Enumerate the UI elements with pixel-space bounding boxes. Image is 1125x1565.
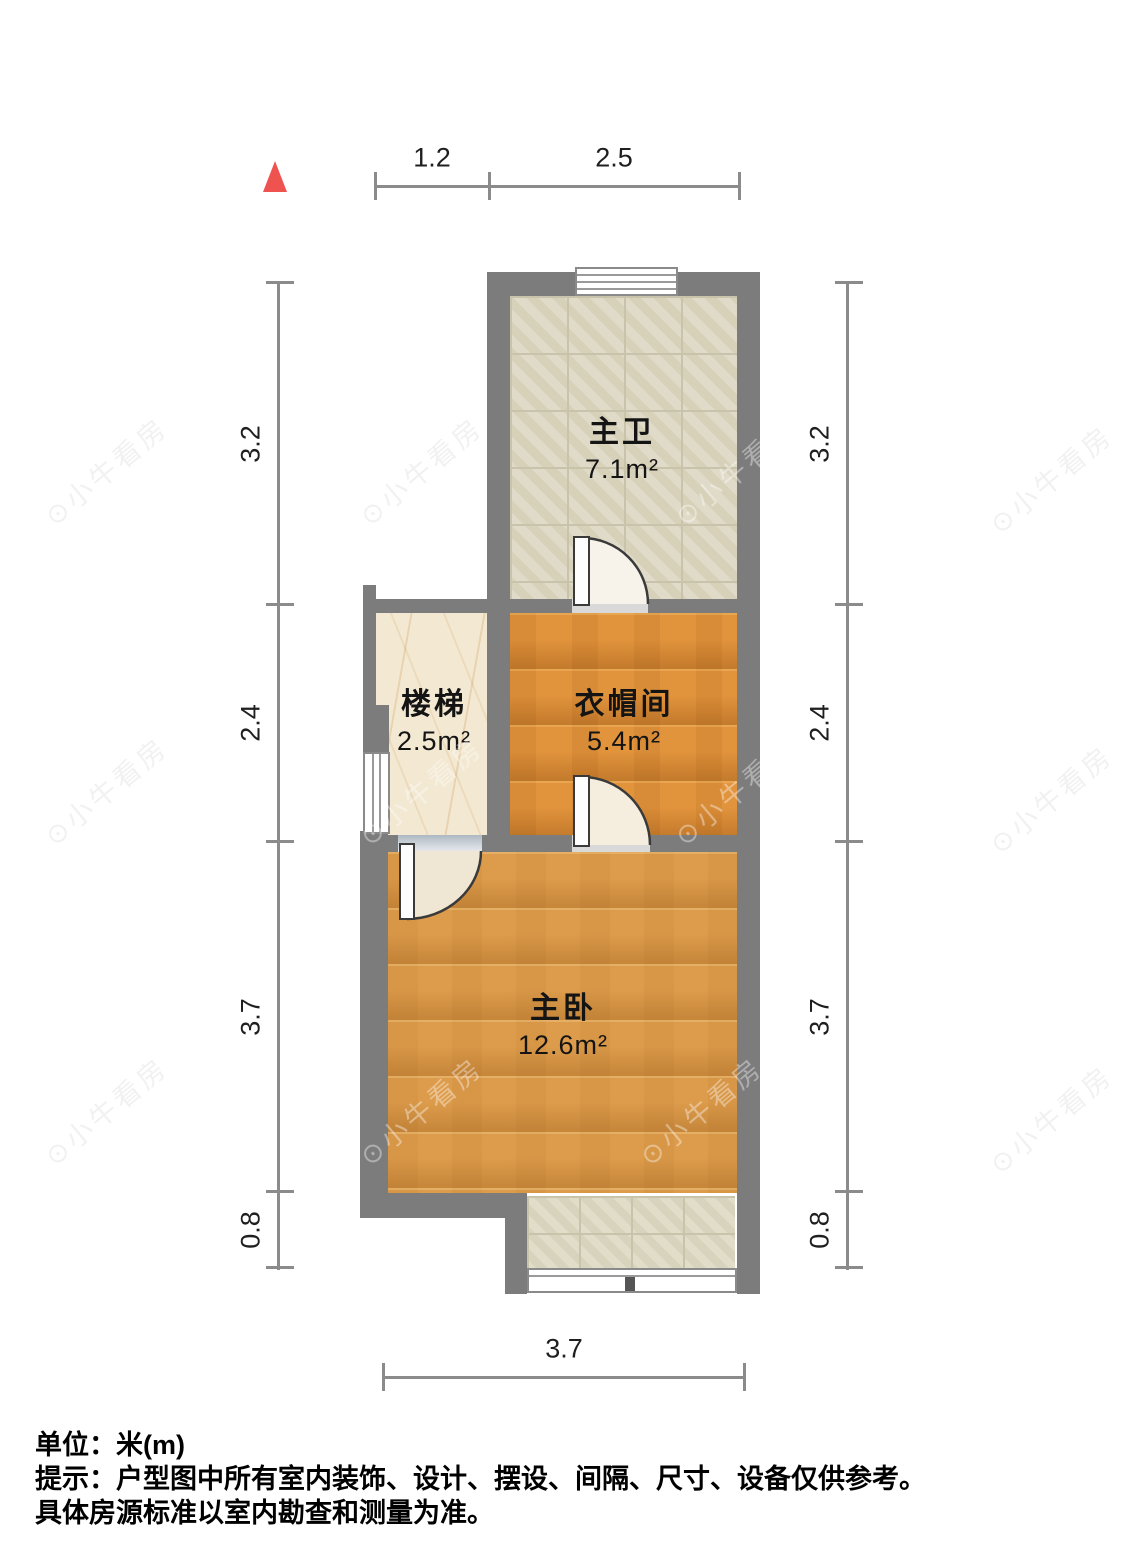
- dim-tick: [266, 1266, 294, 1269]
- door-arcs-layer: [0, 0, 1125, 1565]
- footer-note-1: 提示：户型图中所有室内装饰、设计、摆设、间隔、尺寸、设备仅供参考。: [35, 1462, 926, 1496]
- dim-value: 0.8: [236, 1211, 267, 1249]
- dim-value: 3.2: [236, 425, 267, 463]
- footer-unit: 单位：米(m): [35, 1428, 926, 1462]
- footer-note-2: 具体房源标准以室内勘查和测量为准。: [35, 1496, 926, 1530]
- room-label-bathroom: 主卫 7.1m²: [585, 407, 659, 485]
- room-name: 主卧: [518, 983, 608, 1027]
- dim-tick: [835, 281, 863, 284]
- dim-tick: [835, 840, 863, 843]
- room-area: 7.1m²: [585, 454, 659, 485]
- dim-value: 1.2: [413, 143, 451, 174]
- room-label-stairs: 楼梯 2.5m²: [397, 679, 471, 757]
- dim-tick: [835, 1266, 863, 1269]
- room-name: 楼梯: [397, 679, 471, 723]
- room-area: 5.4m²: [575, 726, 674, 757]
- room-label-cloakroom: 衣帽间 5.4m²: [575, 679, 674, 757]
- dim-value: 2.5: [595, 143, 633, 174]
- footer-notes: 单位：米(m) 提示：户型图中所有室内装饰、设计、摆设、间隔、尺寸、设备仅供参考…: [35, 1428, 926, 1530]
- dim-value: 2.4: [236, 704, 267, 742]
- dim-tick: [738, 172, 741, 200]
- dim-tick: [266, 1190, 294, 1193]
- dim-value: 3.7: [545, 1334, 583, 1365]
- dim-value: 2.4: [805, 704, 836, 742]
- room-area: 12.6m²: [518, 1030, 608, 1061]
- north-arrow-icon: [263, 161, 287, 192]
- dim-tick: [266, 281, 294, 284]
- dim-tick: [382, 1363, 385, 1391]
- cloakroom-door-panel: [573, 775, 590, 847]
- dim-value: 3.2: [805, 425, 836, 463]
- dim-line-top: [375, 185, 740, 188]
- dim-tick: [835, 603, 863, 606]
- bathroom-door-panel: [573, 536, 590, 606]
- dim-value: 3.7: [805, 998, 836, 1036]
- dim-tick: [835, 1190, 863, 1193]
- dim-tick: [488, 172, 491, 200]
- floor-plan: 主卫 7.1m² 楼梯 2.5m² 衣帽间 5.4m² 主卧 12.6m² 1.…: [0, 0, 1125, 1565]
- room-label-bedroom: 主卧 12.6m²: [518, 983, 608, 1061]
- room-name: 主卫: [585, 407, 659, 451]
- bedroom-door-panel: [399, 843, 415, 920]
- dim-line-bottom: [383, 1376, 745, 1379]
- dim-line-right: [846, 283, 849, 1270]
- dim-value: 0.8: [805, 1211, 836, 1249]
- dim-tick: [374, 172, 377, 200]
- dim-line-left: [277, 283, 280, 1270]
- dim-tick: [743, 1363, 746, 1391]
- room-area: 2.5m²: [397, 726, 471, 757]
- dim-value: 3.7: [236, 998, 267, 1036]
- dim-tick: [266, 603, 294, 606]
- room-name: 衣帽间: [575, 679, 674, 723]
- dim-tick: [266, 840, 294, 843]
